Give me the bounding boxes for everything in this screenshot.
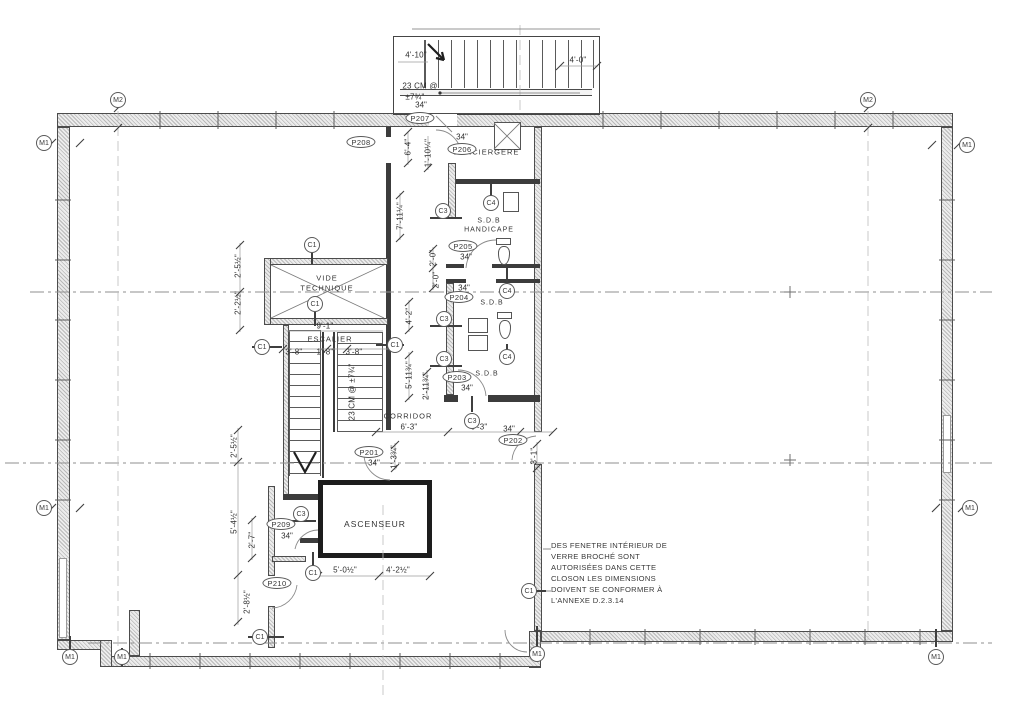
dim-d2_5h: 2'-5½" — [234, 254, 243, 278]
wall-corridor-west — [386, 163, 391, 430]
door-tag-p210: P210 — [262, 577, 291, 589]
dim-d4_2: 4'-2" — [405, 308, 414, 325]
door-width-label: 34" — [368, 459, 380, 468]
wall-tag-m1: M1 — [114, 649, 130, 665]
exterior-stair-treads — [424, 40, 594, 88]
dim-d9_1: 9'-1" — [317, 322, 334, 331]
door-tag-p204: P204 — [444, 291, 473, 303]
dim-d3_1: 3'-1" — [530, 448, 539, 465]
wall-p204-right — [496, 279, 540, 283]
room-label-ascenseur: ASCENSEUR — [344, 519, 406, 529]
dim-d2_7: 2'-7" — [248, 532, 257, 549]
note-line: DOIVENT SE CONFORMER À — [551, 584, 667, 595]
wall-handicap-north — [456, 179, 540, 184]
window-right-wall — [943, 415, 951, 473]
note-line: VERRE BROCHÉ SONT — [551, 551, 667, 562]
note-line: L'ANNEXE D.2.3.14 — [551, 595, 667, 606]
door-tag-p202: P202 — [498, 434, 527, 446]
door-width-label: 34" — [503, 425, 515, 434]
room-label-vide-technique: TECHNIQUE — [300, 284, 353, 293]
window-left-wall — [59, 558, 67, 638]
wall-p205-right — [492, 264, 540, 268]
dim-d3_8: 3'-8" — [286, 348, 303, 357]
door-tag-p201: P201 — [354, 446, 383, 458]
door-tag-p203: P203 — [442, 371, 471, 383]
dim-d1_10q: 1'-10¼" — [424, 139, 433, 167]
wall-tag-m1: M1 — [928, 649, 944, 665]
wall-tag-c4: C4 — [499, 349, 515, 365]
floor-plan: DES FENETRE INTÉRIEUR DE VERRE BROCHÉ SO… — [0, 0, 1024, 717]
wall-tag-c3: C3 — [293, 506, 309, 522]
dim-d1_3t: 1'-3¾" — [390, 445, 399, 469]
dim-d2_0: 2'-0" — [429, 250, 438, 267]
room-label-corridor: CORRIDOR — [384, 412, 433, 421]
wall-bottom-left-connector — [100, 640, 112, 667]
wall-p205-left — [446, 264, 464, 268]
wall-p203-right — [488, 395, 540, 402]
toilet-bowl-2 — [499, 320, 511, 339]
wall-p209 — [300, 538, 318, 543]
dim-d2_2h: 2'-2½" — [234, 291, 243, 315]
dim-d6_3: 6'-3" — [401, 423, 418, 432]
wall-tag-c1: C1 — [252, 629, 268, 645]
room-label-escalier: ESCALIER — [307, 335, 352, 344]
door-tag-p208: P208 — [346, 136, 375, 148]
note-line: CLOSON LES DIMENSIONS — [551, 573, 667, 584]
wall-bottom-right — [541, 631, 953, 642]
wall-tag-c1: C1 — [304, 237, 320, 253]
wall-tag-m1: M1 — [529, 646, 545, 662]
dim-d3_8: 3'-8" — [346, 348, 363, 357]
wall-tag-c3: C3 — [464, 413, 480, 429]
wall-tag-c1: C1 — [307, 296, 323, 312]
door-tag-p205: P205 — [448, 240, 477, 252]
note-line: DES FENETRE INTÉRIEUR DE — [551, 540, 667, 551]
wall-corridor-west-stub — [386, 127, 391, 137]
wall-bottom-left-jog — [57, 640, 105, 650]
door-width-label: 34" — [460, 253, 472, 262]
dim-d4_2h: 4'-2½" — [386, 566, 410, 575]
wall-vide-west — [264, 258, 271, 325]
door-width-label: 34" — [415, 101, 427, 110]
room-label-sdb: S.D.B — [475, 371, 498, 378]
dim-d1_8: 1'-8" — [317, 348, 334, 357]
wall-tag-c1: C1 — [254, 339, 270, 355]
dim-d4_10: 4'-10" — [405, 51, 427, 60]
dim-d2_8h: 2'-8½" — [243, 590, 252, 614]
wall-tag-c1: C1 — [305, 565, 321, 581]
dim-d6_4: 6'-4" — [404, 139, 413, 156]
door-tag-p209: P209 — [266, 518, 295, 530]
wall-bottom-center — [100, 656, 541, 667]
toilet-tank-2 — [497, 312, 512, 319]
wall-vestibule-west-upper — [268, 486, 275, 576]
sink-sdb-a — [468, 318, 488, 333]
dim-riser_note_l1: 23 CM @ — [402, 82, 437, 91]
wall-tag-m2: M2 — [110, 92, 126, 108]
dim-d4_0: 4'-0" — [570, 56, 587, 65]
wall-tag-c3: C3 — [436, 311, 452, 327]
sink-sdb-b — [468, 335, 488, 351]
wall-tag-c1: C1 — [521, 583, 537, 599]
wall-tag-c3: C3 — [436, 351, 452, 367]
wall-vestibule-west-lower — [268, 606, 275, 648]
wall-tag-m1: M1 — [62, 649, 78, 665]
wall-p203-left — [444, 395, 458, 402]
wall-x540-lower — [534, 464, 542, 631]
door-width-label: 34" — [456, 133, 468, 142]
wall-tag-m2: M2 — [860, 92, 876, 108]
dim-riser_note_stair: 23 CM @ ±7¾" — [348, 364, 357, 421]
wall-tag-c4: C4 — [483, 195, 499, 211]
dim-d2_11t: 2'-11¾" — [422, 372, 431, 400]
door-tag-p206: P206 — [447, 143, 476, 155]
wall-tag-c1: C1 — [387, 337, 403, 353]
note-glass-partition: DES FENETRE INTÉRIEUR DE VERRE BROCHÉ SO… — [551, 540, 667, 606]
wall-tag-m1: M1 — [959, 137, 975, 153]
wall-tag-c4: C4 — [499, 283, 515, 299]
wall-vide-north — [264, 258, 388, 265]
dim-d7_11q: 7'-11¼" — [396, 202, 405, 230]
wall-right — [941, 127, 953, 631]
wall-tag-m1: M1 — [36, 500, 52, 516]
wall-tag-m1: M1 — [36, 135, 52, 151]
wall-tag-m1: M1 — [962, 500, 978, 516]
dim-d5_0h: 5'-0½" — [333, 566, 357, 575]
room-label-vide-technique: VIDE — [316, 274, 338, 283]
dim-d2_0: 2'-0" — [432, 272, 441, 289]
room-label-sdb-handicape: HANDICAPE — [464, 227, 514, 234]
dim-d2_5h: 2'-5½" — [230, 434, 239, 458]
room-label-sdb: S.D.B — [480, 300, 503, 307]
sink-handicap — [503, 192, 519, 212]
wall-tag-c3: C3 — [435, 203, 451, 219]
toilet-tank-1 — [496, 238, 511, 245]
wall-stub-bottom-left — [129, 610, 140, 656]
dim-d5_11t: 5'-11¾" — [405, 361, 414, 389]
dim-riser_note_l2: ±7¾" — [405, 93, 424, 102]
note-line: AUTORISÉES DANS CETTE — [551, 562, 667, 573]
column-shaft-box — [494, 122, 521, 150]
door-width-label: 34" — [281, 532, 293, 541]
door-width-label: 34" — [461, 384, 473, 393]
toilet-bowl-1 — [498, 246, 510, 265]
door-tag-p207: P207 — [405, 112, 434, 124]
wall-vestibule-mid — [272, 556, 306, 562]
dim-d5_4h: 5'-4½" — [230, 510, 239, 534]
room-label-sdb-handicape: S.D.B — [477, 218, 500, 225]
